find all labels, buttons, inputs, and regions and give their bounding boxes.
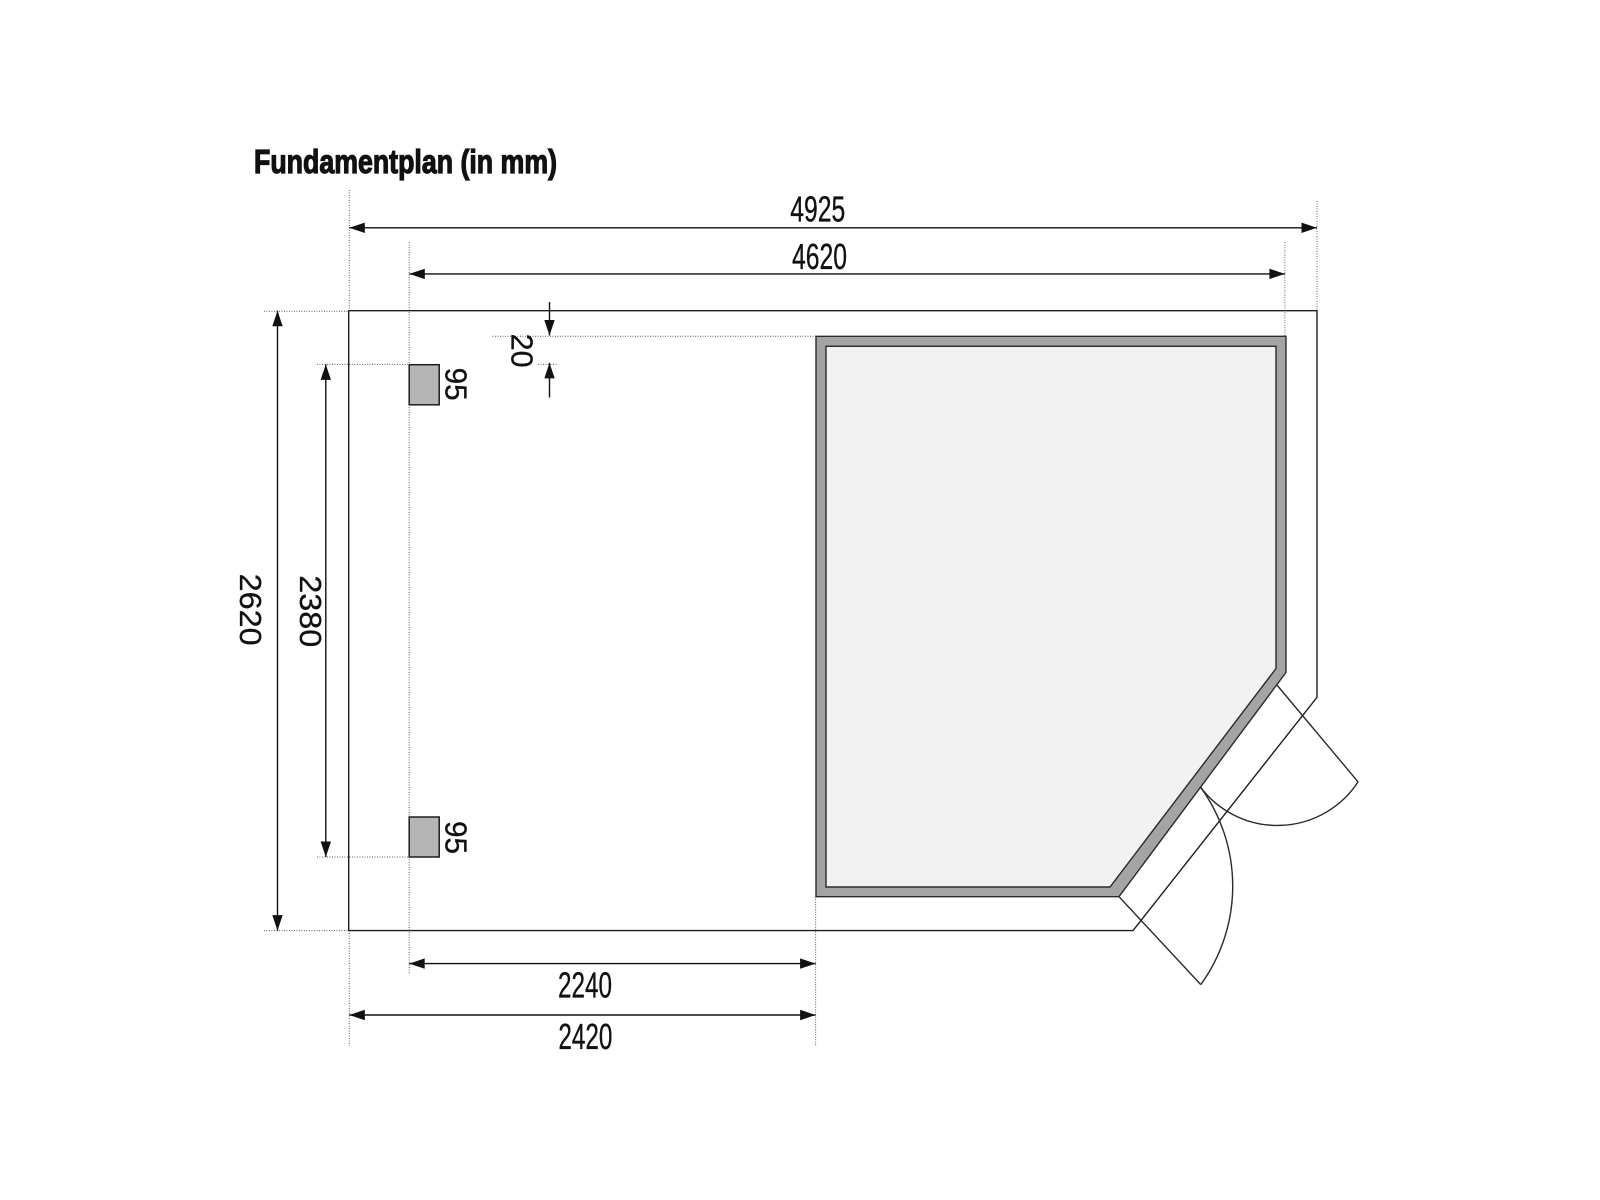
svg-text:2240: 2240 — [558, 965, 612, 1006]
svg-text:2420: 2420 — [558, 1016, 612, 1057]
svg-text:2380: 2380 — [293, 575, 328, 647]
svg-text:20: 20 — [505, 334, 540, 368]
svg-text:4620: 4620 — [792, 236, 847, 277]
svg-text:95: 95 — [439, 368, 474, 401]
svg-text:Fundamentplan (in mm): Fundamentplan (in mm) — [254, 143, 557, 181]
svg-text:95: 95 — [439, 821, 474, 854]
svg-text:4925: 4925 — [790, 189, 845, 230]
svg-text:2620: 2620 — [233, 574, 268, 646]
